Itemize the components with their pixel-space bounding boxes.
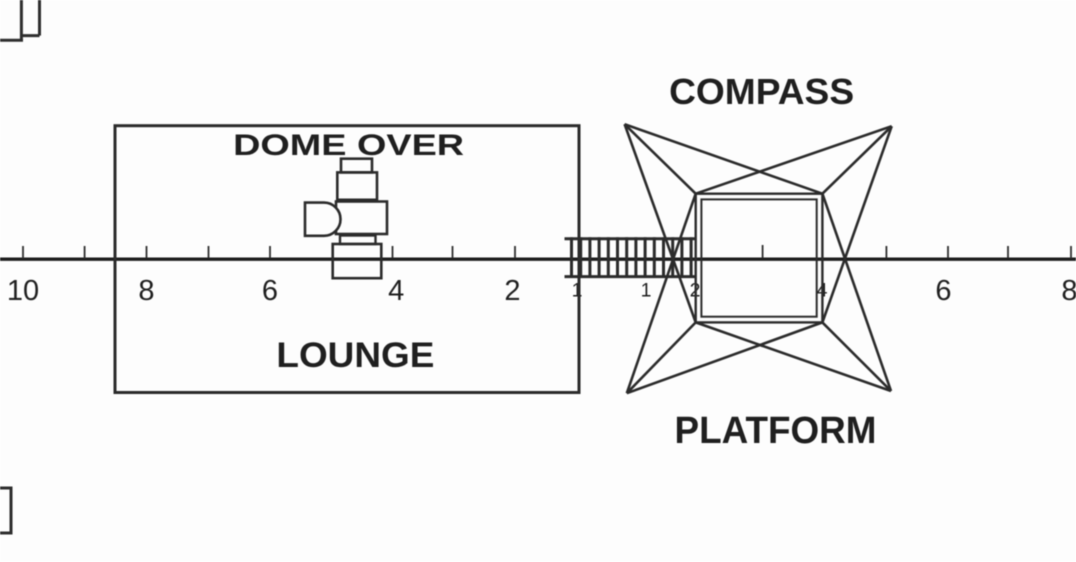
svg-text:10: 10 <box>7 275 39 307</box>
svg-text:8: 8 <box>138 275 154 307</box>
svg-text:2: 2 <box>504 275 520 307</box>
svg-text:COMPASS: COMPASS <box>669 71 854 112</box>
svg-text:DOME OVER: DOME OVER <box>233 129 464 162</box>
svg-text:LOUNGE: LOUNGE <box>276 336 434 375</box>
svg-text:6: 6 <box>262 275 278 307</box>
svg-text:4: 4 <box>388 275 404 307</box>
svg-text:PLATFORM: PLATFORM <box>675 410 877 452</box>
svg-text:1: 1 <box>572 280 583 302</box>
svg-text:1: 1 <box>641 280 652 302</box>
svg-text:8: 8 <box>1061 275 1076 307</box>
svg-text:6: 6 <box>935 275 951 307</box>
